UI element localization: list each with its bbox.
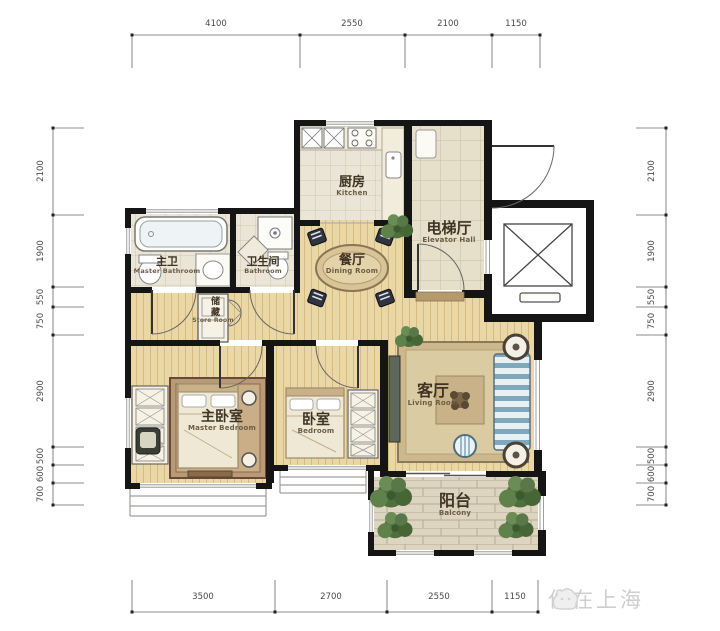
dim-label: 550 [36, 289, 46, 305]
kitchen-label-en: Kitchen [336, 190, 367, 198]
bed-bench [188, 471, 232, 477]
bathroom-label-en: Bathroom [244, 268, 282, 275]
master-bedroom-label-en: Master Bedroom [188, 425, 256, 433]
dim-label: 550 [647, 289, 657, 305]
dim-label: 1900 [36, 240, 46, 262]
dim-label: 700 [647, 486, 657, 502]
dim-label: 750 [647, 313, 657, 329]
living-label-zh: 客厅 [408, 382, 459, 400]
floor-plan-drawing [0, 0, 720, 631]
room-label-bathroom: 卫生间 Bathroom [244, 256, 282, 275]
entry-cabinet [416, 130, 436, 158]
room-label-dining: 餐厅 Dining Room [326, 254, 379, 276]
bedroom-label-zh: 卧室 [298, 413, 335, 428]
passage-floor [404, 298, 484, 324]
dimension-lines-top [131, 34, 542, 69]
storage-label-en: Store Room [192, 318, 234, 325]
dim-label: 500 [647, 448, 657, 464]
cat-logo-icon [548, 584, 582, 618]
dim-label: 600 [36, 466, 46, 482]
dim-label: 1150 [504, 592, 526, 602]
dimension-lines-left [52, 127, 85, 507]
storage-label-zh: 储藏 [208, 296, 218, 318]
room-label-bedroom: 卧室 Bedroom [298, 413, 335, 436]
dim-label: 600 [647, 466, 657, 482]
dim-label: 500 [36, 448, 46, 464]
balcony-label-zh: 阳台 [439, 492, 471, 510]
dim-label: 750 [36, 313, 46, 329]
dim-label: 1150 [505, 19, 527, 29]
living-label-en: Living Room [408, 400, 459, 408]
room-label-elevator-hall: 电梯厅 Elevator Hall [422, 220, 475, 244]
watermark: 住在上海 [548, 584, 644, 614]
kitchen-label-zh: 厨房 [336, 176, 367, 190]
dim-label: 2550 [341, 19, 363, 29]
dim-label: 2700 [320, 592, 342, 602]
elevator-hall-label-en: Elevator Hall [422, 237, 475, 245]
room-label-balcony: 阳台 Balcony [439, 492, 471, 517]
dim-label: 2900 [36, 380, 46, 402]
room-label-kitchen: 厨房 Kitchen [336, 176, 367, 198]
dining-label-en: Dining Room [326, 268, 379, 276]
floor-plan-image: 厨房 Kitchen 电梯厅 Elevator Hall 餐厅 Dining R… [0, 0, 720, 631]
sofa [494, 354, 530, 450]
room-label-master-bath: 主卫 Master Bathroom [134, 256, 201, 275]
dim-label: 2100 [36, 160, 46, 182]
dim-label: 700 [36, 486, 46, 502]
room-label-master-bedroom: 主卧室 Master Bedroom [188, 410, 256, 433]
dim-label: 2900 [647, 380, 657, 402]
dim-label: 2550 [428, 592, 450, 602]
elevator-hall-label-zh: 电梯厅 [422, 220, 475, 237]
dim-label: 2100 [437, 19, 459, 29]
dim-label: 2100 [647, 160, 657, 182]
tv-console [389, 356, 400, 442]
room-label-living: 客厅 Living Room [408, 382, 459, 407]
dim-label: 1900 [647, 240, 657, 262]
bedroom-label-en: Bedroom [298, 428, 335, 436]
entry-doormat [416, 292, 464, 301]
room-label-storage: 储藏 Store Room [192, 296, 234, 325]
master-bath-label-en: Master Bathroom [134, 268, 201, 275]
dining-label-zh: 餐厅 [326, 254, 379, 268]
balcony-label-en: Balcony [439, 510, 471, 518]
dim-label: 3500 [192, 592, 214, 602]
dim-label: 4100 [205, 19, 227, 29]
master-bedroom-label-zh: 主卧室 [188, 410, 256, 425]
balcony-slider [406, 474, 486, 476]
